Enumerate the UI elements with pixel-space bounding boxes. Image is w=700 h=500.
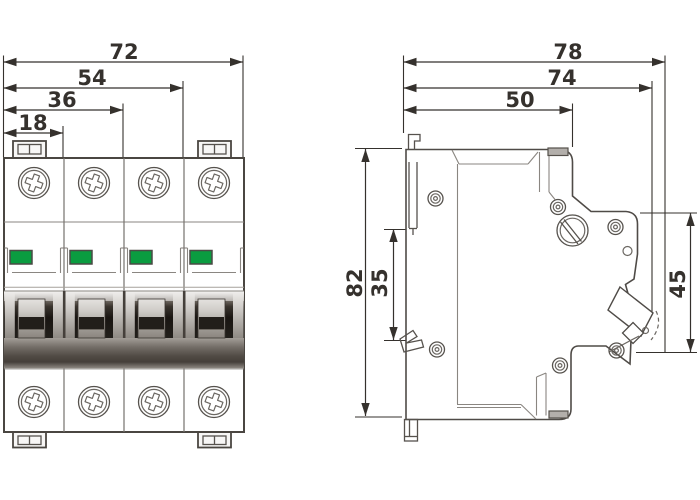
arrowhead-bottom	[361, 403, 369, 416]
dim-label-50: 50	[505, 88, 534, 112]
dimension-45: 45	[666, 213, 695, 352]
side-body-outline	[406, 150, 638, 420]
arrowhead-left	[404, 106, 417, 114]
arrowhead-left	[404, 58, 417, 66]
breaker-dimension-drawing: 72 54 36 18	[0, 0, 700, 500]
dimension-78: 78	[404, 40, 666, 66]
dim-label-36: 36	[47, 88, 76, 112]
top-terminal-tab	[548, 148, 568, 156]
arrowhead-top	[361, 149, 369, 162]
arrowhead-left	[4, 84, 17, 92]
arrowhead-left	[404, 84, 417, 92]
arrowhead-right	[110, 106, 123, 114]
din-clip-top-left	[13, 141, 46, 158]
arrowhead-bottom	[389, 327, 397, 340]
din-clip-top-right	[198, 141, 231, 158]
arrowhead-top	[389, 229, 397, 242]
bottom-terminal-tab	[549, 411, 568, 418]
arrowhead-right	[170, 84, 183, 92]
arrowhead-top	[686, 213, 694, 226]
dim-label-18: 18	[18, 111, 47, 135]
arrowhead-right	[652, 58, 665, 66]
technical-drawing-canvas: 72 54 36 18	[0, 0, 700, 500]
dimension-50: 50	[404, 88, 573, 114]
arrowhead-left	[4, 106, 17, 114]
din-clip-bottom-left	[13, 432, 46, 448]
dim-label-82: 82	[343, 268, 367, 297]
dimension-82: 82	[343, 149, 370, 416]
back-top-tab	[409, 135, 421, 151]
arrowhead-right	[50, 129, 63, 137]
dimension-35: 35	[368, 229, 398, 340]
breaker-side-view: 78 74 50 82 35	[343, 40, 697, 441]
arrowhead-right	[639, 84, 652, 92]
dim-label-78: 78	[553, 40, 582, 64]
arrowhead-right	[230, 58, 243, 66]
back-bottom-tab	[405, 420, 418, 442]
toggle-band-roll	[4, 338, 244, 368]
dim-label-72: 72	[109, 40, 138, 64]
arrowhead-bottom	[686, 339, 694, 352]
dimension-72: 72	[4, 40, 244, 66]
dim-label-54: 54	[77, 66, 106, 90]
dimension-18: 18	[4, 111, 64, 137]
dimension-54: 54	[4, 66, 184, 92]
dim-label-45: 45	[666, 269, 690, 298]
din-clip-bottom-right	[198, 432, 231, 448]
dim-label-35: 35	[368, 268, 392, 297]
breaker-front-view: 72 54 36 18	[4, 40, 245, 448]
arrowhead-left	[4, 129, 17, 137]
dim-label-74: 74	[547, 66, 576, 90]
arrowhead-left	[4, 58, 17, 66]
arrowhead-right	[560, 106, 573, 114]
